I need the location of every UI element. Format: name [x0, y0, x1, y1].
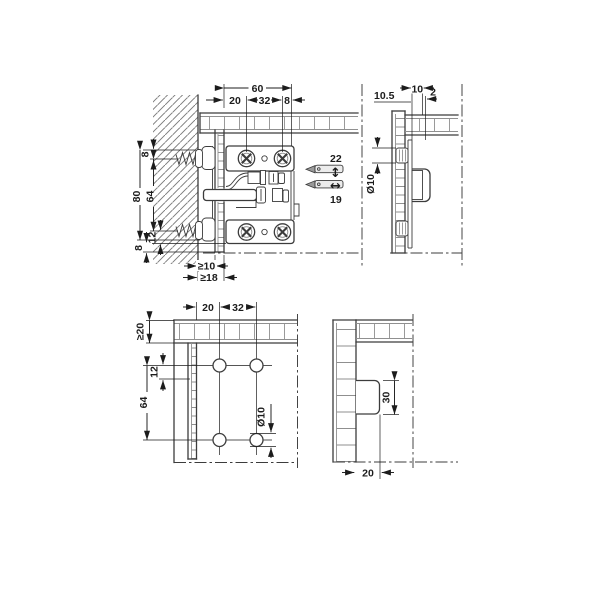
front-view: 60 20 32 8 80 8 64: [131, 83, 362, 284]
dim-drill-hole-dia: Ø10: [256, 407, 268, 427]
hanger-plate-bottom: [226, 220, 294, 244]
wall-hatch: [153, 95, 198, 264]
dim-row-spacing: 64: [138, 397, 150, 409]
screw-top-left: [238, 150, 254, 166]
dim-total-width: 60: [252, 83, 264, 95]
hole-top-right: [250, 359, 263, 372]
hole-top-left: [213, 359, 226, 372]
screw-bottom-left: [238, 224, 254, 240]
side-view: 10.5 10 2 Ø10: [365, 83, 462, 266]
dim-hole-spacing: 32: [259, 95, 271, 107]
dim-top-min: ≥20: [135, 323, 147, 341]
hole-bottom-right: [250, 434, 263, 447]
dim-housing-depth: 20: [362, 468, 374, 480]
dim-top-margin: 8: [140, 151, 152, 157]
screw-bottom-right: [274, 224, 290, 240]
installation-drawing: 60 20 32 8 80 8 64: [0, 0, 600, 600]
side-top-panel: [405, 115, 458, 135]
dim-screw-spacing: 64: [145, 191, 157, 203]
drill-side-back-panel: [333, 320, 356, 462]
dim-wall-depth-min: ≥18: [200, 272, 218, 284]
drill-side-view: 30 20: [333, 314, 458, 480]
adjustment-mechanism: [204, 171, 289, 208]
adjust-horizontal-value: 19: [330, 194, 342, 206]
hanger-plate-top: [226, 146, 294, 171]
hanger-body-side: [291, 171, 299, 220]
dim-bottom-margin: 8: [133, 245, 145, 251]
drill-side-top-panel: [356, 320, 412, 342]
adjust-horizontal-arrow-icon: ↔: [330, 179, 341, 194]
dim-bottom-offset: 12: [147, 232, 159, 244]
housing-outline: [356, 381, 380, 415]
dim-total-height: 80: [131, 191, 143, 203]
dim-gap: 2: [430, 87, 436, 99]
dim-housing-height: 30: [381, 392, 393, 404]
drill-back-panel-strip: [188, 343, 197, 459]
dim-drill-offset: 20: [202, 302, 214, 314]
hole-bottom-left: [213, 434, 226, 447]
dim-row-offset: 12: [149, 366, 161, 378]
dim-plate-offset: 10.5: [374, 90, 395, 102]
dowel-boss-top: [396, 148, 408, 163]
dim-wall-gap-min: ≥10: [198, 261, 216, 273]
screw-top-right: [274, 150, 290, 166]
dowel-boss-bottom: [396, 221, 408, 236]
adjustment-legend: 22 ↕ ↔ 19: [306, 153, 343, 206]
dim-boss-diameter: Ø10: [365, 174, 377, 194]
dim-drill-hole-spacing: 32: [232, 302, 244, 314]
housing-tab: [412, 169, 430, 202]
dim-offset: 20: [229, 95, 241, 107]
dim-depth: 10: [411, 84, 423, 96]
dim-edge: 8: [284, 95, 290, 107]
adjust-vertical-value: 22: [330, 153, 342, 165]
drill-front-view: 20 32 ≥20 12 64 Ø10: [135, 302, 298, 468]
